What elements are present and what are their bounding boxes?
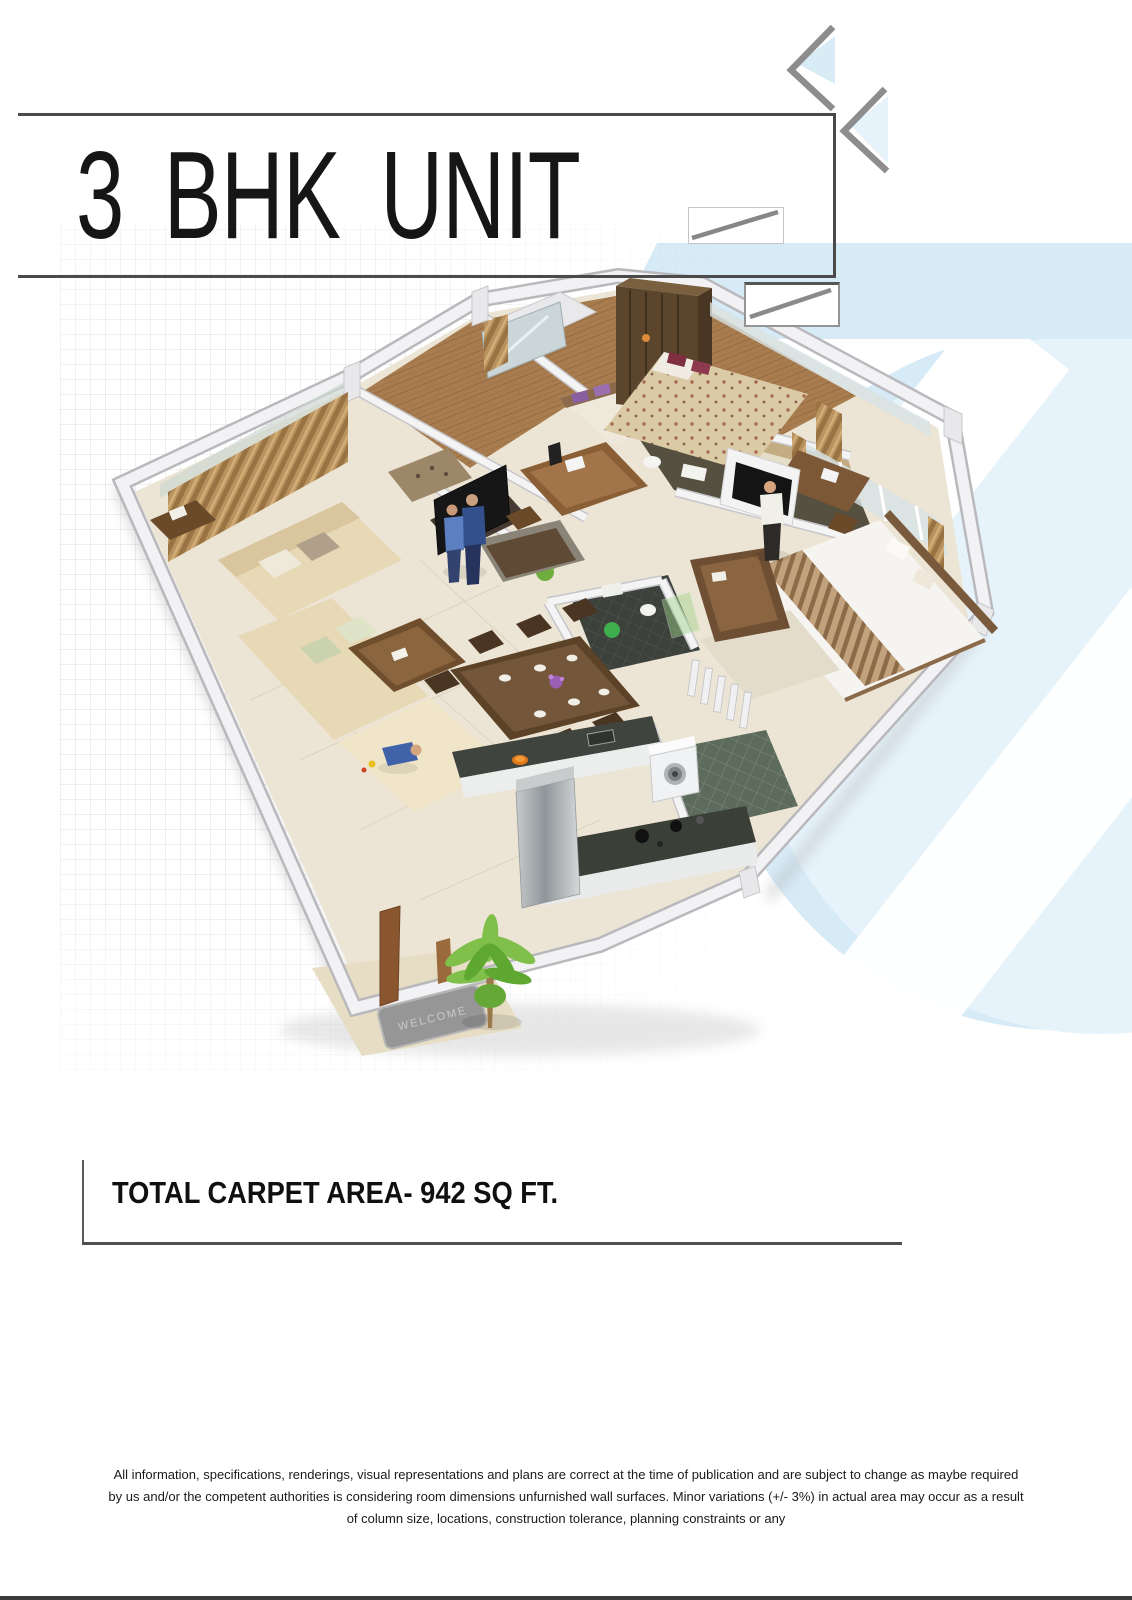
carpet-area-label: TOTAL CARPET AREA- 942 SQ FT. [112,1175,558,1211]
master-bedroom [688,432,998,728]
accent-box [688,207,784,244]
entry-door [380,906,400,1006]
title-box: 3 BHK UNIT [18,113,836,278]
chimney-unit [516,778,580,908]
chevron-decoration [770,15,920,185]
disclaimer: All information, specifications, renderi… [0,1464,1132,1530]
page-bottom-edge [0,1596,1132,1600]
diagonal-line-icon [746,285,834,320]
plant [604,622,620,638]
page-title: 3 BHK UNIT [76,125,580,267]
accent-box [744,282,840,327]
disclaimer-line: by us and/or the competent authorities i… [0,1486,1132,1508]
toilet [640,604,656,616]
area-rule-horizontal [82,1242,902,1245]
lamp [642,334,650,342]
brochure-page: 3 BHK UNIT [0,0,1132,1600]
hob [635,829,649,843]
area-rule-vertical [82,1160,84,1244]
diagonal-line-icon [689,208,781,241]
disclaimer-line: All information, specifications, renderi… [0,1464,1132,1486]
floor-plan-illustration: WELCOME [80,240,1000,1080]
toilet [643,456,661,468]
disclaimer-line: of column size, locations, construction … [0,1508,1132,1530]
monitor [548,442,562,466]
washing-machine [648,736,699,802]
